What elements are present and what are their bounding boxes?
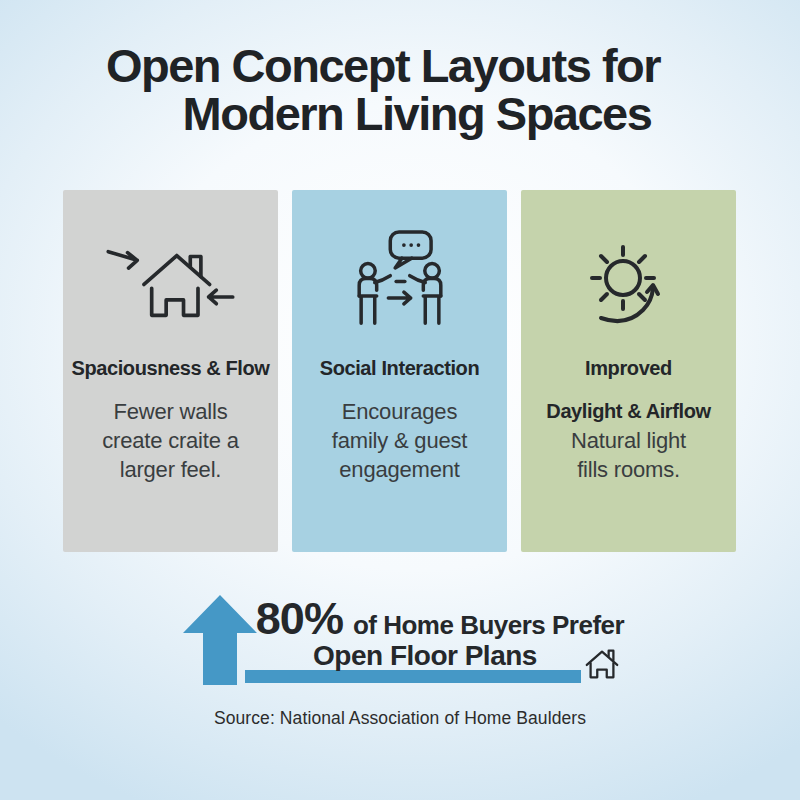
card-title: Spaciousness & Flow xyxy=(63,356,278,380)
stat-line-1: 80% of Home Buyers Prefer xyxy=(250,596,630,641)
infographic-canvas: Open Concept Layouts for Modern Living S… xyxy=(0,0,800,800)
card-body-line: fills rooms. xyxy=(521,455,736,484)
card-body: Natural light fills rooms. xyxy=(521,426,736,484)
card-title: Social Interaction xyxy=(292,356,507,380)
page-title-text-2: Modern Living Spaces xyxy=(183,90,652,138)
card-social-interaction: Social Interaction Encourages family & g… xyxy=(292,190,507,552)
card-body-line: engagement xyxy=(292,455,507,484)
home-icon xyxy=(583,645,621,687)
page-title-line-1: Open Concept Layouts for xyxy=(0,42,800,90)
source-attribution: Source: National Association of Home Bau… xyxy=(0,708,800,729)
page-title-text-1: Open Concept Layouts for xyxy=(106,42,660,90)
benefit-cards: Spaciousness & Flow Fewer walls create c… xyxy=(63,190,736,552)
card-body-line: Natural light xyxy=(521,426,736,455)
card-spaciousness-flow: Spaciousness & Flow Fewer walls create c… xyxy=(63,190,278,552)
sun-rotation-icon xyxy=(521,238,736,333)
house-with-arrows-icon xyxy=(63,242,278,324)
stat-text-block: 80% of Home Buyers Prefer Open Floor Pla… xyxy=(250,596,630,672)
card-title: Improved xyxy=(521,356,736,380)
card-body-line: Encourages xyxy=(292,397,507,426)
page-title-line-2: Modern Living Spaces xyxy=(0,90,800,138)
card-body: Fewer walls create craite a larger feel. xyxy=(63,397,278,484)
stat-label: of Home Buyers Prefer xyxy=(353,610,624,641)
people-conversation-icon xyxy=(292,230,507,332)
stat-value: 80% xyxy=(256,596,343,641)
stat-line-2: Open Floor Plans xyxy=(235,640,615,672)
card-body: Encourages family & guest engagement xyxy=(292,397,507,484)
card-body-line: family & guest xyxy=(292,426,507,455)
card-daylight-airflow: Improved Daylight & Airflow Natural ligh… xyxy=(521,190,736,552)
card-subtitle: Daylight & Airflow xyxy=(521,399,736,423)
card-body-line: create craite a xyxy=(63,426,278,455)
card-body-line: larger feel. xyxy=(63,455,278,484)
card-body-line: Fewer walls xyxy=(63,397,278,426)
